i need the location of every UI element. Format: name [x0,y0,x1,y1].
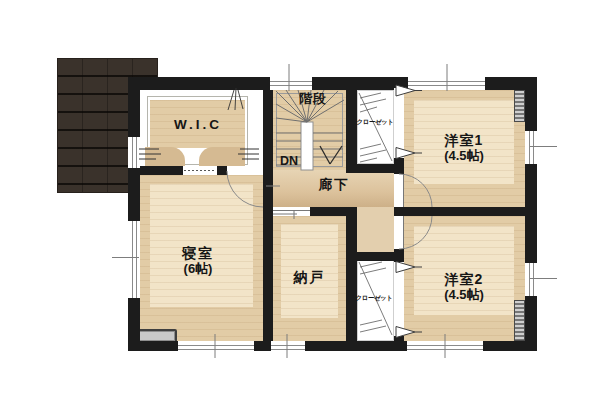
room-label-storage: 納戸 [273,270,346,285]
wall-hall-east-b [394,158,404,174]
window-top-western1 [408,77,485,90]
western1-wall-shelf [514,90,525,122]
open-passage-wic [183,166,217,175]
wall-storage-top-a [263,207,273,216]
room-label-bedroom: 寝室 [148,246,248,261]
window-right-western1 [525,131,537,164]
wic-wedge-left [145,147,185,166]
bifold-opening-closet-upper [394,88,404,158]
room-size-western2: (4.5帖) [414,288,514,302]
door-opening-bedroom [227,166,263,175]
bifold-opening-closet-lower [394,262,404,336]
closet-lower-label: クローゼット [354,295,394,302]
window-bottom-western2 [407,341,483,351]
wall-hall-east-a [394,77,404,88]
room-label-western1: 洋室1 [414,133,514,148]
floor-plan: W.I.C 階段 DN 廊下 クローゼット クローゼット 洋室1 (4.5帖) … [0,0,600,415]
closet-upper-floor [357,90,394,164]
room-label-stairs: 階段 [283,92,343,106]
wall-wic-bottom-b [217,166,227,175]
wic-wedge-right [199,147,245,166]
wall-hall-east-d [394,249,404,262]
wall-left [128,77,140,351]
door-opening-western2 [394,216,404,249]
window-bottom-bedroom [178,341,254,351]
stairs-dn-label: DN [274,155,304,168]
room-label-wic: W.I.C [148,118,248,132]
wall-western-divider [394,207,537,216]
wall-storage-right [346,207,357,341]
window-left-bedroom [128,221,140,298]
room-size-western1: (4.5帖) [414,149,514,163]
room-label-western2: 洋室2 [414,272,514,287]
wall-closet-upper-bottom [346,164,394,173]
window-bottom-storage [271,341,305,351]
closet-upper-label: クローゼット [355,119,395,126]
wall-hall-east-e [394,336,404,341]
western2-wall-shelf [514,300,525,341]
room-label-hallway: 廊下 [305,178,363,192]
window-left-wic [128,137,140,168]
room-size-bedroom: (6帖) [148,262,248,276]
window-right-western2 [525,263,537,296]
hallway-pocket-floor [357,207,394,253]
window-top-stairs [270,77,312,90]
door-opening-western1 [394,174,404,207]
wall-closet-lower-top [346,252,394,261]
sliding-opening-storage [273,207,310,216]
